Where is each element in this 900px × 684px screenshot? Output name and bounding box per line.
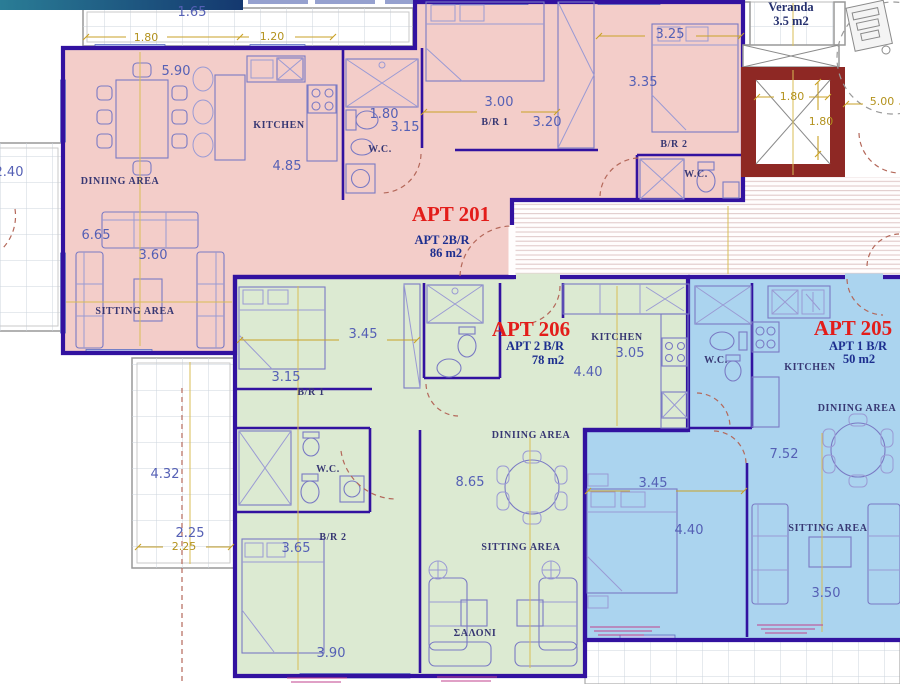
room-label: DINIING AREA	[492, 430, 571, 441]
floor-plan-page: Veranda 3.5 m2 KITCHENDINIING AREASITTIN…	[0, 0, 900, 684]
room-label: B/R 1	[481, 117, 508, 128]
dimension-label: 1.20	[260, 30, 285, 43]
clipped-header-text	[248, 0, 413, 4]
dimension-label: 3.50	[812, 586, 841, 601]
room-label: W.C.	[684, 169, 708, 180]
dimension-label: 4.85	[273, 159, 302, 174]
room-label: W.C.	[368, 144, 392, 155]
dimension-label: 3.35	[629, 75, 658, 90]
dimension-label: 2.25	[172, 540, 197, 553]
floor-plan-drawing: Veranda 3.5 m2 KITCHENDINIING AREASITTIN…	[0, 0, 900, 684]
room-label: B/R 1	[297, 387, 324, 398]
dimension-label: 2.25	[176, 526, 205, 541]
room-label: DINIING AREA	[81, 176, 160, 187]
veranda-label-line2: 3.5 m2	[773, 14, 808, 28]
dimension-label: 3.15	[272, 370, 301, 385]
room-label: B/R 2	[660, 139, 687, 150]
room-label: KITCHEN	[253, 120, 305, 131]
dimension-label: 1.80	[780, 90, 805, 103]
dimension-label: 3.65	[282, 541, 311, 556]
dimension-label: 3.05	[616, 346, 645, 361]
header-bar	[0, 0, 243, 10]
apartment-name: APT 206	[492, 317, 570, 341]
dimension-label: 3.45	[349, 327, 378, 342]
dimension-label: 5.00	[870, 95, 895, 108]
room-label: W.C.	[704, 355, 728, 366]
dimension-label: 3.25	[656, 27, 685, 42]
dimension-label: 4.32	[151, 467, 180, 482]
apartment-name: APT 201	[412, 202, 490, 226]
room-label: KITCHEN	[784, 362, 836, 373]
dimension-label: 2.40	[0, 165, 23, 180]
room-label: ΣΑΛΟΝΙ	[454, 628, 497, 639]
dimension-label: 6.65	[82, 228, 111, 243]
room-label: SITTING AREA	[788, 523, 867, 534]
elevator-shaft	[741, 45, 845, 177]
dimension-label: 1.65	[178, 5, 207, 20]
room-label: DINIING AREA	[818, 403, 897, 414]
dimension-label: 8.65	[456, 475, 485, 490]
dimension-label: 3.00	[485, 95, 514, 110]
apartment-name: APT 205	[814, 316, 892, 340]
room-label: B/R 2	[319, 532, 346, 543]
dimension-label: 3.90	[317, 646, 346, 661]
dimension-label: 5.90	[162, 64, 191, 79]
veranda-label-line1: Veranda	[768, 0, 814, 14]
dimension-label: 4.40	[574, 365, 603, 380]
dimension-label: 1.80	[809, 115, 834, 128]
veranda-top-strip	[83, 8, 413, 46]
room-label: SITTING AREA	[95, 306, 174, 317]
dimension-label: 3.15	[391, 120, 420, 135]
dimension-label: 3.60	[139, 248, 168, 263]
apartment-area: 50 m2	[843, 352, 875, 366]
room-label: KITCHEN	[591, 332, 643, 343]
dimension-label: 3.20	[533, 115, 562, 130]
apartment-type: APT 1 B/R	[829, 339, 888, 353]
apartment-area: 78 m2	[532, 353, 564, 367]
veranda-bottom-right	[585, 641, 900, 684]
apartment-type: APT 2 B/R	[506, 339, 565, 353]
apartment-type: APT 2B/R	[415, 233, 471, 247]
dimension-label: 4.40	[675, 523, 704, 538]
apartment-area: 86 m2	[430, 246, 462, 260]
dimension-label: 3.45	[639, 476, 668, 491]
dimension-label: 1.80	[134, 31, 159, 44]
room-label: SITTING AREA	[481, 542, 560, 553]
room-label: W.C.	[316, 464, 340, 475]
dimension-label: 7.52	[770, 447, 799, 462]
